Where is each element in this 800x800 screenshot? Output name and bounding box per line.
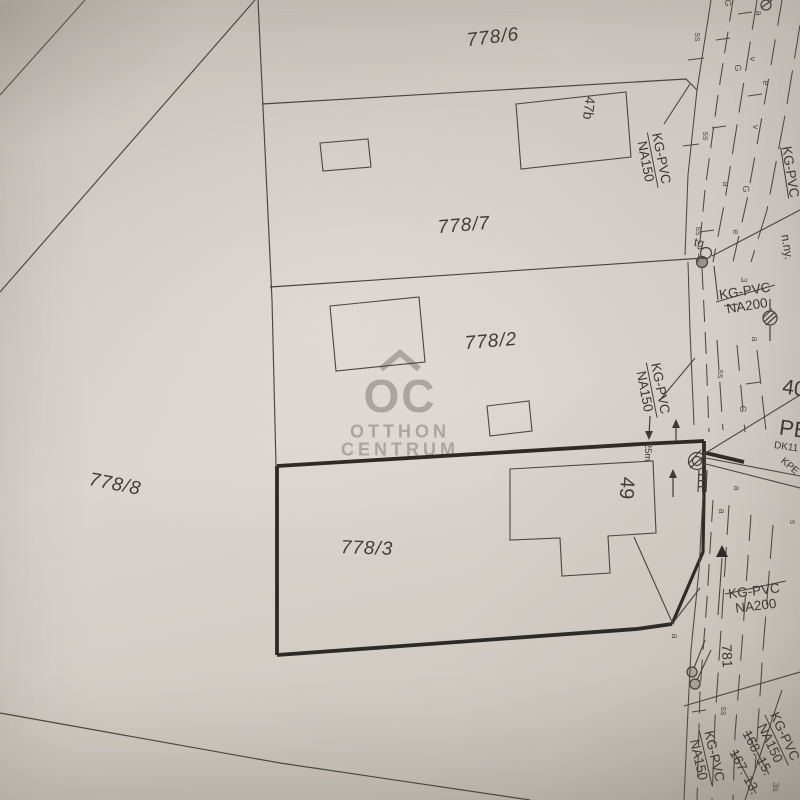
road-mark: ss	[694, 226, 704, 236]
road-mark: a	[670, 633, 680, 639]
building-778-2-small	[487, 401, 532, 436]
road-mark: a	[721, 181, 731, 187]
road-mark: ss	[719, 706, 729, 716]
road-mark: G	[723, 0, 733, 7]
road-mark: G	[741, 185, 751, 193]
road-mark: ss	[693, 32, 703, 42]
label-pipe-40: 40	[781, 376, 800, 401]
label-781: 781	[719, 644, 735, 668]
road-mark: 3	[739, 277, 749, 283]
road-mark: v	[748, 56, 758, 61]
building-label-47b: 47b	[580, 96, 597, 121]
road-mark: e	[731, 229, 741, 235]
road-mark: ss	[716, 369, 726, 379]
label-n-ny: n.ny.	[779, 234, 795, 261]
road-mark: a	[717, 508, 727, 514]
road-mark: 3s	[771, 782, 781, 792]
lamp-icon	[761, 0, 772, 10]
road-mark: v	[751, 124, 761, 129]
watermark-roof-icon	[381, 353, 419, 369]
map-linework	[0, 0, 800, 800]
road-utility-lines	[683, 0, 800, 800]
tg-manhole-icon	[697, 248, 712, 268]
label-pipe-pe: PE	[778, 416, 800, 443]
road-mark: a	[750, 336, 760, 342]
road-mark: G	[738, 405, 748, 413]
building-label-49: 49	[615, 476, 638, 500]
cadastral-map-photo: OC OTTHON CENTRUM	[0, 0, 800, 800]
road-mark: G	[733, 64, 743, 72]
parcel-boundaries	[0, 0, 704, 800]
road-mark: e	[761, 80, 771, 86]
building-47b	[516, 92, 631, 169]
road-mark: s	[788, 519, 798, 524]
label-dim-25m: 25m	[642, 443, 653, 462]
parcel-label-778-3: 778/3	[340, 538, 393, 560]
building-778-7-small	[320, 139, 371, 171]
road-mark: ss	[701, 131, 711, 141]
road-mark: a	[754, 10, 764, 16]
road-mark: a	[732, 485, 742, 491]
